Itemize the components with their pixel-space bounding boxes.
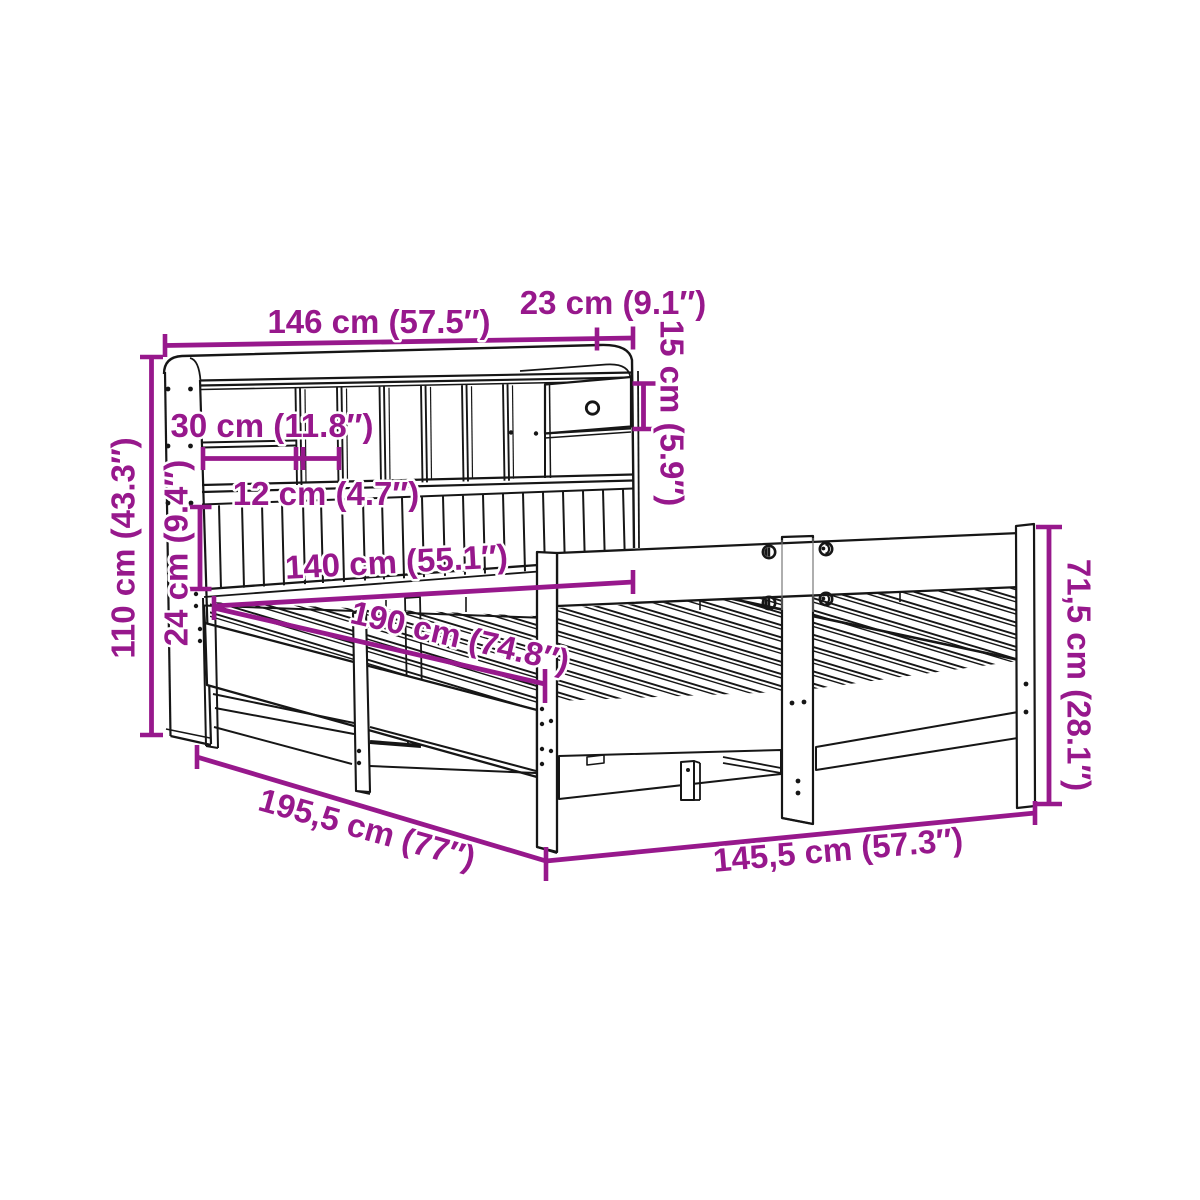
svg-text:71,5 cm (28.1″): 71,5 cm (28.1″) [1061, 559, 1098, 791]
svg-text:146 cm (57.5″): 146 cm (57.5″) [267, 303, 490, 340]
svg-text:12 cm (4.7″): 12 cm (4.7″) [233, 475, 419, 512]
svg-text:15 cm (5.9″): 15 cm (5.9″) [654, 320, 691, 506]
svg-text:110 cm (43.3″): 110 cm (43.3″) [105, 437, 142, 658]
svg-text:30 cm (11.8″): 30 cm (11.8″) [171, 407, 374, 444]
svg-text:23 cm (9.1″): 23 cm (9.1″) [520, 284, 706, 321]
svg-text:24 cm (9.4″): 24 cm (9.4″) [158, 460, 195, 646]
